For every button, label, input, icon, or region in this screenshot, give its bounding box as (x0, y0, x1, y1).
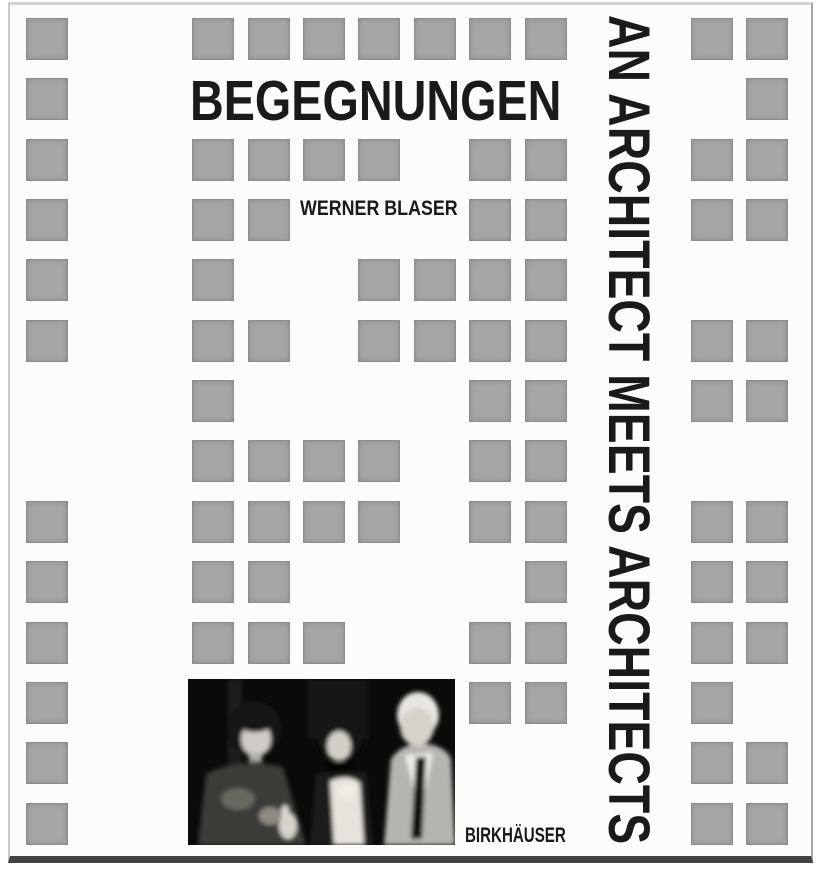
grid-square (746, 320, 788, 362)
grid-square (358, 501, 400, 543)
grid-square (26, 742, 68, 784)
grid-square (248, 440, 290, 482)
grid-square (469, 501, 511, 543)
grid-square (469, 139, 511, 181)
cover-photo-illustration (188, 679, 455, 845)
grid-square (469, 440, 511, 482)
grid-square (746, 199, 788, 241)
grid-square (303, 139, 345, 181)
grid-square (26, 18, 68, 60)
grid-square (192, 501, 234, 543)
grid-square (358, 320, 400, 362)
grid-square (469, 199, 511, 241)
grid-square (525, 139, 567, 181)
grid-square (414, 259, 456, 301)
grid-square (192, 561, 234, 603)
grid-square (746, 622, 788, 664)
grid-square (746, 561, 788, 603)
grid-square (746, 501, 788, 543)
grid-square (26, 622, 68, 664)
grid-square (248, 320, 290, 362)
grid-square (26, 320, 68, 362)
grid-square (303, 622, 345, 664)
grid-square (303, 501, 345, 543)
cover-photo (188, 679, 455, 845)
grid-square (746, 139, 788, 181)
grid-square (192, 259, 234, 301)
grid-square (746, 18, 788, 60)
grid-square (525, 259, 567, 301)
grid-square (26, 561, 68, 603)
grid-square (192, 320, 234, 362)
grid-square (26, 199, 68, 241)
grid-square (469, 380, 511, 422)
grid-square (525, 440, 567, 482)
grid-square (192, 380, 234, 422)
grid-square (691, 18, 733, 60)
grid-square (248, 139, 290, 181)
grid-square (358, 259, 400, 301)
grid-square (248, 561, 290, 603)
grid-square (691, 742, 733, 784)
side-title-vertical: AN ARCHITECT MEETS ARCHITECTS (599, 15, 657, 844)
grid-square (746, 78, 788, 120)
grid-square (414, 18, 456, 60)
grid-square (248, 622, 290, 664)
grid-square (192, 139, 234, 181)
grid-square (358, 440, 400, 482)
book-cover-page: BEGEGNUNGEN WERNER BLASER AN ARCHITECT M… (0, 0, 816, 870)
grid-square (525, 622, 567, 664)
grid-square (691, 622, 733, 664)
grid-square (469, 682, 511, 724)
grid-square (525, 380, 567, 422)
grid-square (303, 440, 345, 482)
grid-square (525, 199, 567, 241)
grid-square (469, 18, 511, 60)
grid-square (469, 622, 511, 664)
grid-square (192, 18, 234, 60)
grid-square (525, 18, 567, 60)
grid-square (691, 320, 733, 362)
grid-square (691, 139, 733, 181)
grid-square (746, 380, 788, 422)
grid-square (525, 682, 567, 724)
grid-square (26, 259, 68, 301)
grid-square (525, 320, 567, 362)
grid-square (691, 682, 733, 724)
grid-square (691, 803, 733, 845)
grid-square (358, 18, 400, 60)
grid-square (358, 139, 400, 181)
grid-square (414, 320, 456, 362)
grid-square (691, 561, 733, 603)
grid-square (303, 18, 345, 60)
grid-square (26, 682, 68, 724)
grid-square (469, 259, 511, 301)
grid-square (248, 501, 290, 543)
grid-square (248, 18, 290, 60)
grid-square (525, 501, 567, 543)
author-name: WERNER BLASER (300, 201, 458, 217)
grid-square (469, 320, 511, 362)
grid-square (192, 622, 234, 664)
grid-square (691, 501, 733, 543)
grid-square (26, 803, 68, 845)
grid-square (26, 501, 68, 543)
grid-square (248, 199, 290, 241)
grid-square (746, 742, 788, 784)
grid-square (746, 803, 788, 845)
grid-square (192, 440, 234, 482)
grid-square (691, 380, 733, 422)
publisher-name: BIRKHÄUSER (465, 828, 566, 844)
grid-square (192, 199, 234, 241)
grid-square (691, 199, 733, 241)
grid-square (525, 561, 567, 603)
book-title: BEGEGNUNGEN (190, 80, 561, 122)
grid-square (26, 78, 68, 120)
grid-square (26, 139, 68, 181)
